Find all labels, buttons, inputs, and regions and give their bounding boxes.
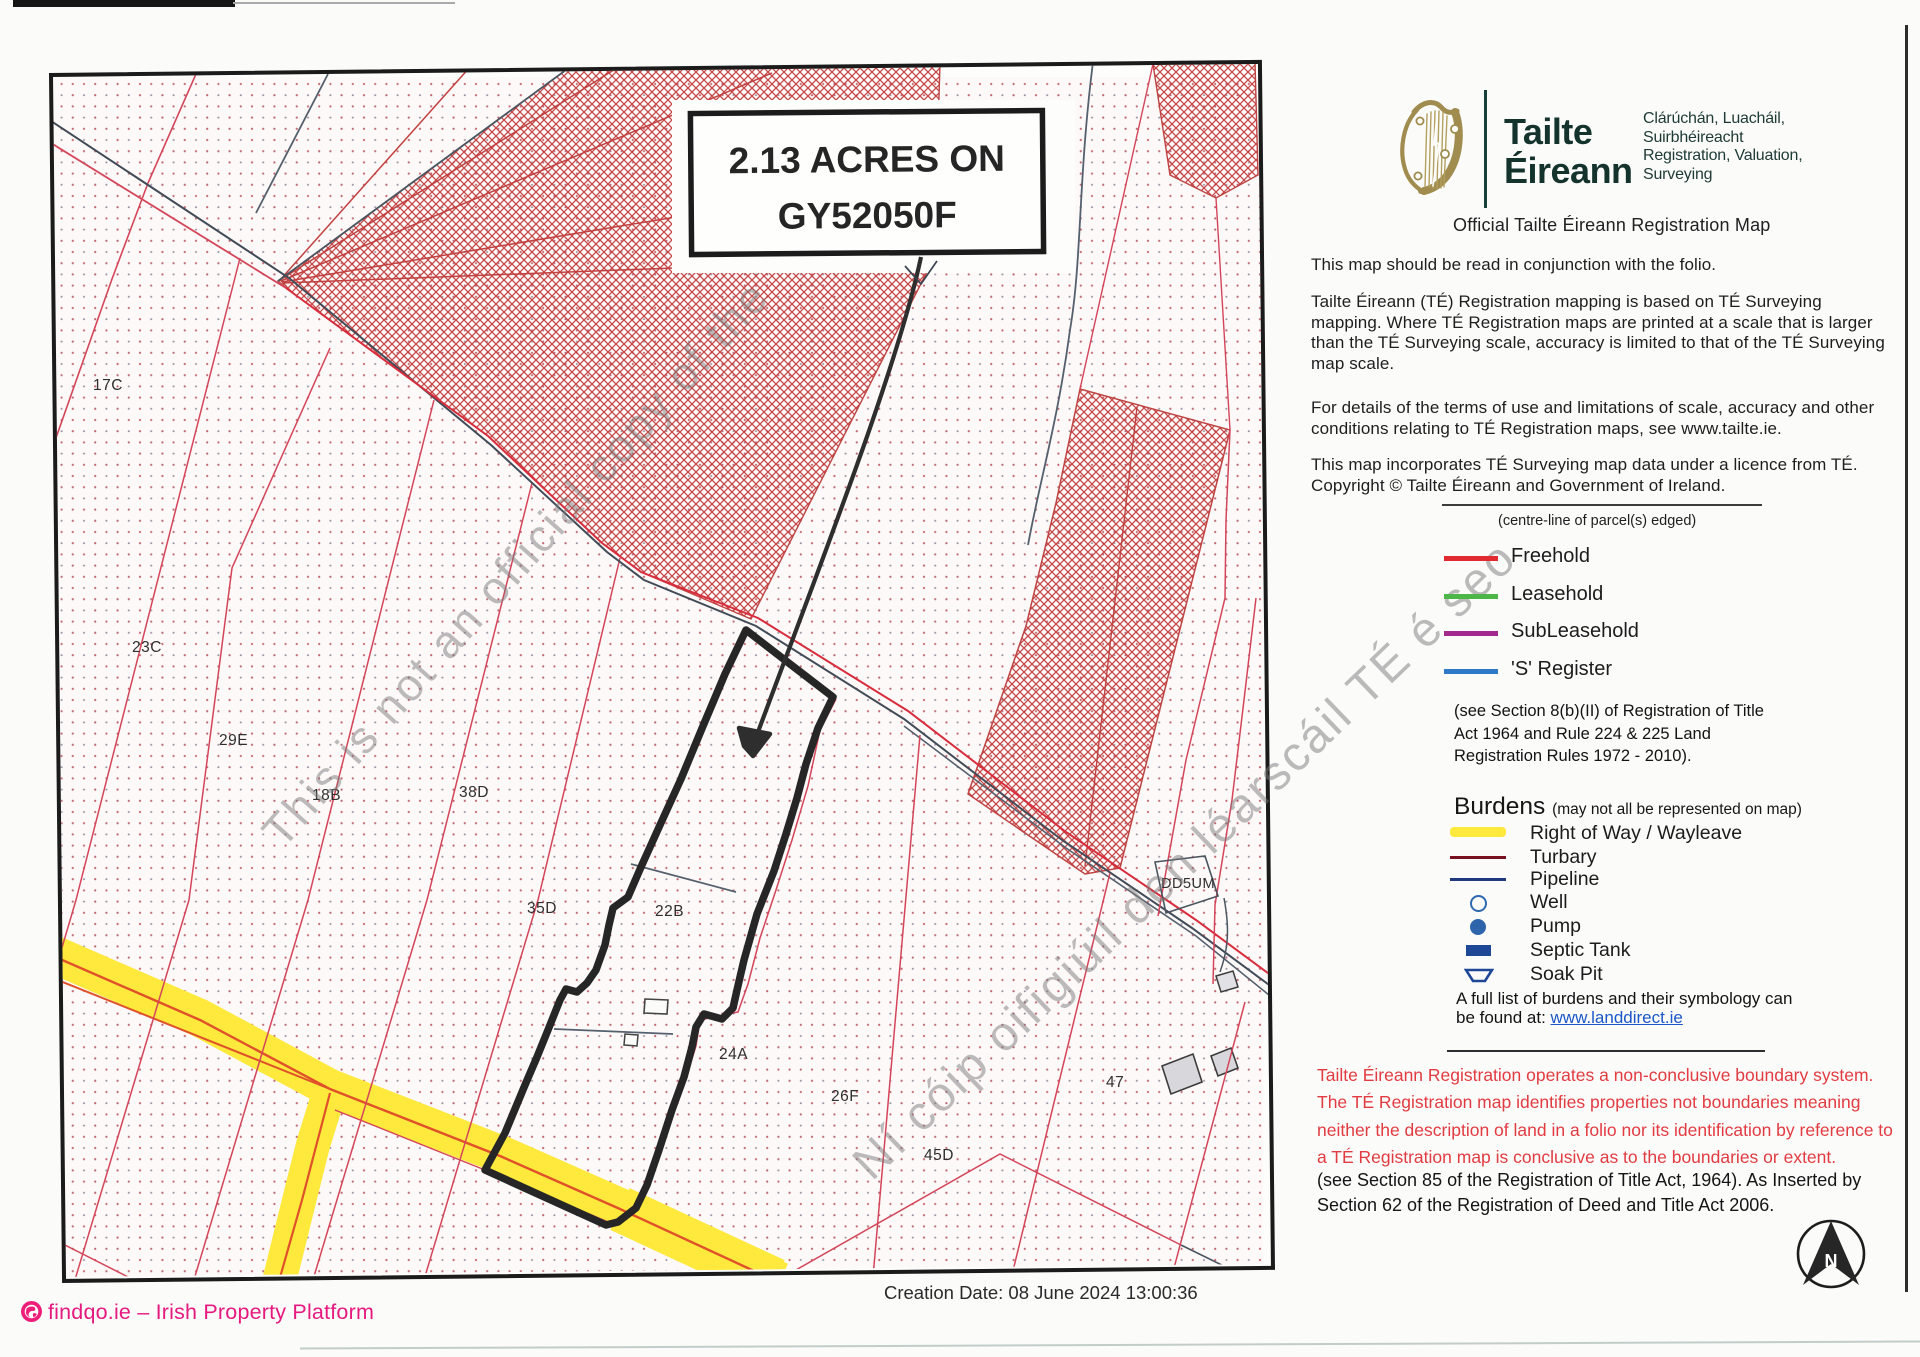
svg-text:GY52050F: GY52050F bbox=[778, 194, 957, 237]
svg-text:22B: 22B bbox=[655, 903, 684, 920]
svg-text:23C: 23C bbox=[132, 639, 162, 656]
svg-text:17C: 17C bbox=[93, 377, 123, 394]
svg-text:Creation Date: 08 June 2024 13: Creation Date: 08 June 2024 13:00:36 bbox=[884, 1282, 1198, 1303]
svg-text:35D: 35D bbox=[527, 900, 557, 917]
svg-text:38D: 38D bbox=[459, 784, 489, 801]
svg-text:2.13 ACRES ON: 2.13 ACRES ON bbox=[729, 138, 1006, 181]
svg-text:26F: 26F bbox=[831, 1088, 859, 1105]
svg-text:29E: 29E bbox=[219, 732, 248, 749]
svg-text:47: 47 bbox=[1106, 1074, 1124, 1091]
svg-text:24A: 24A bbox=[719, 1046, 748, 1063]
svg-text:45D: 45D bbox=[924, 1147, 954, 1164]
svg-text:N: N bbox=[1825, 1251, 1838, 1271]
